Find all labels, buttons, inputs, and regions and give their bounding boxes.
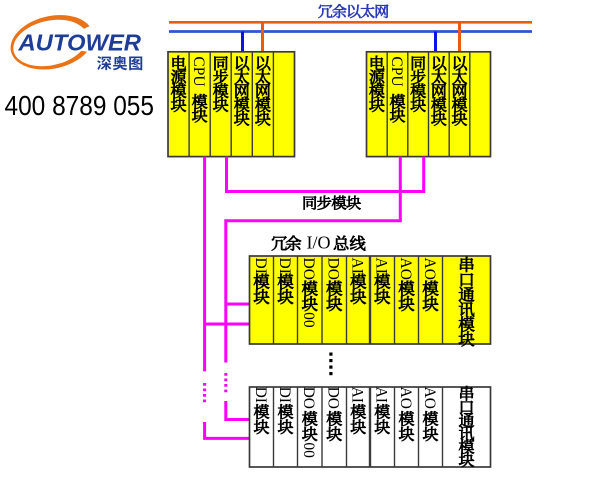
- svg-text:AI: AI: [349, 258, 366, 274]
- svg-text:AI: AI: [349, 387, 366, 403]
- svg-text:DI: DI: [276, 387, 293, 403]
- svg-text:DO: DO: [325, 387, 342, 409]
- svg-text:AO: AO: [421, 258, 438, 280]
- svg-text:CPU: CPU: [388, 56, 405, 86]
- svg-text:DI: DI: [252, 258, 269, 274]
- svg-text:400 8789 055: 400 8789 055: [5, 90, 155, 121]
- svg-text:AO: AO: [421, 387, 438, 409]
- svg-text:DO: DO: [300, 258, 317, 280]
- svg-text:DO: DO: [300, 387, 317, 409]
- svg-text:AUTOWER: AUTOWER: [17, 30, 141, 56]
- svg-text:DO: DO: [325, 258, 342, 280]
- svg-text:CPU: CPU: [190, 56, 207, 86]
- svg-text:AO: AO: [397, 258, 414, 280]
- svg-text:AI: AI: [373, 387, 390, 403]
- svg-text:DI: DI: [276, 258, 293, 274]
- svg-text:I/O: I/O: [307, 233, 331, 253]
- svg-text:AO: AO: [397, 387, 414, 409]
- svg-text:00: 00: [300, 442, 317, 458]
- svg-text:DI: DI: [252, 387, 269, 403]
- svg-text:AI: AI: [373, 258, 390, 274]
- svg-text:00: 00: [300, 312, 317, 328]
